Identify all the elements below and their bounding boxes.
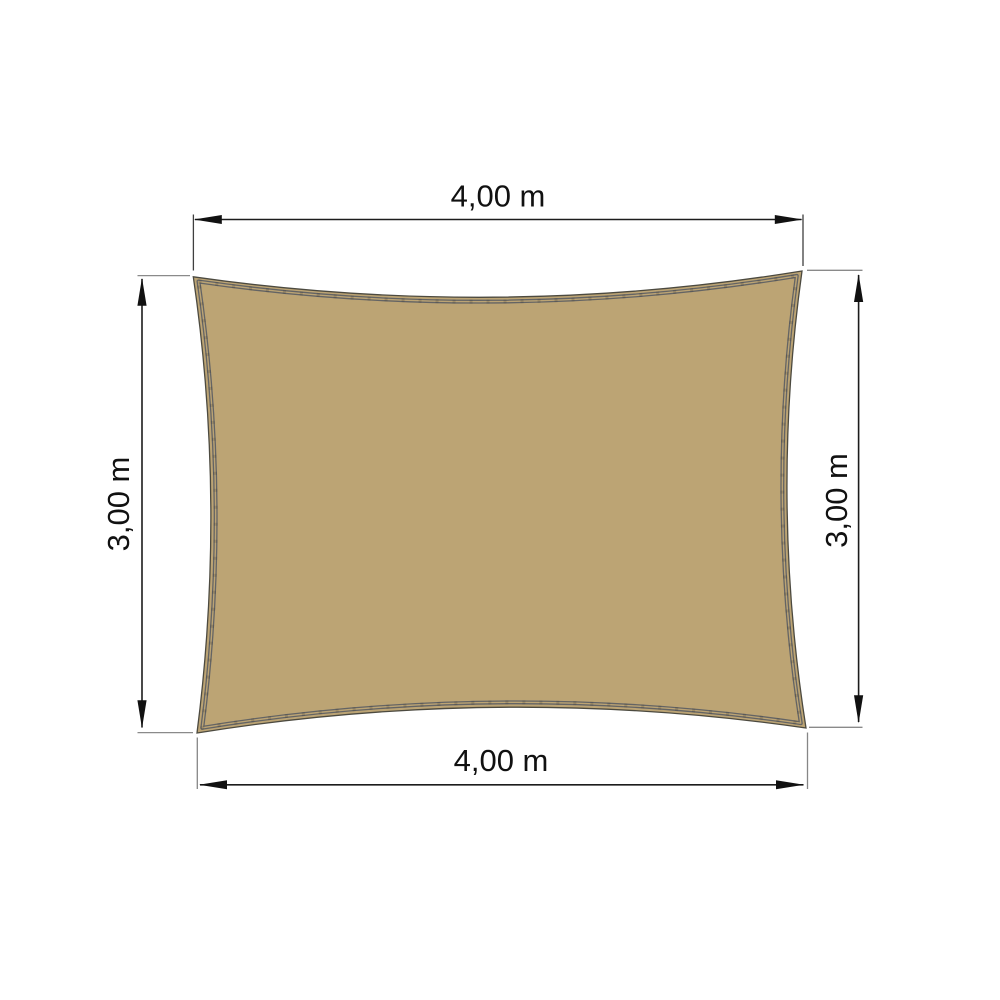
svg-text:4,00 m: 4,00 m xyxy=(451,179,546,214)
svg-text:3,00 m: 3,00 m xyxy=(819,453,854,548)
svg-text:3,00 m: 3,00 m xyxy=(101,457,136,552)
svg-text:4,00 m: 4,00 m xyxy=(454,743,549,778)
